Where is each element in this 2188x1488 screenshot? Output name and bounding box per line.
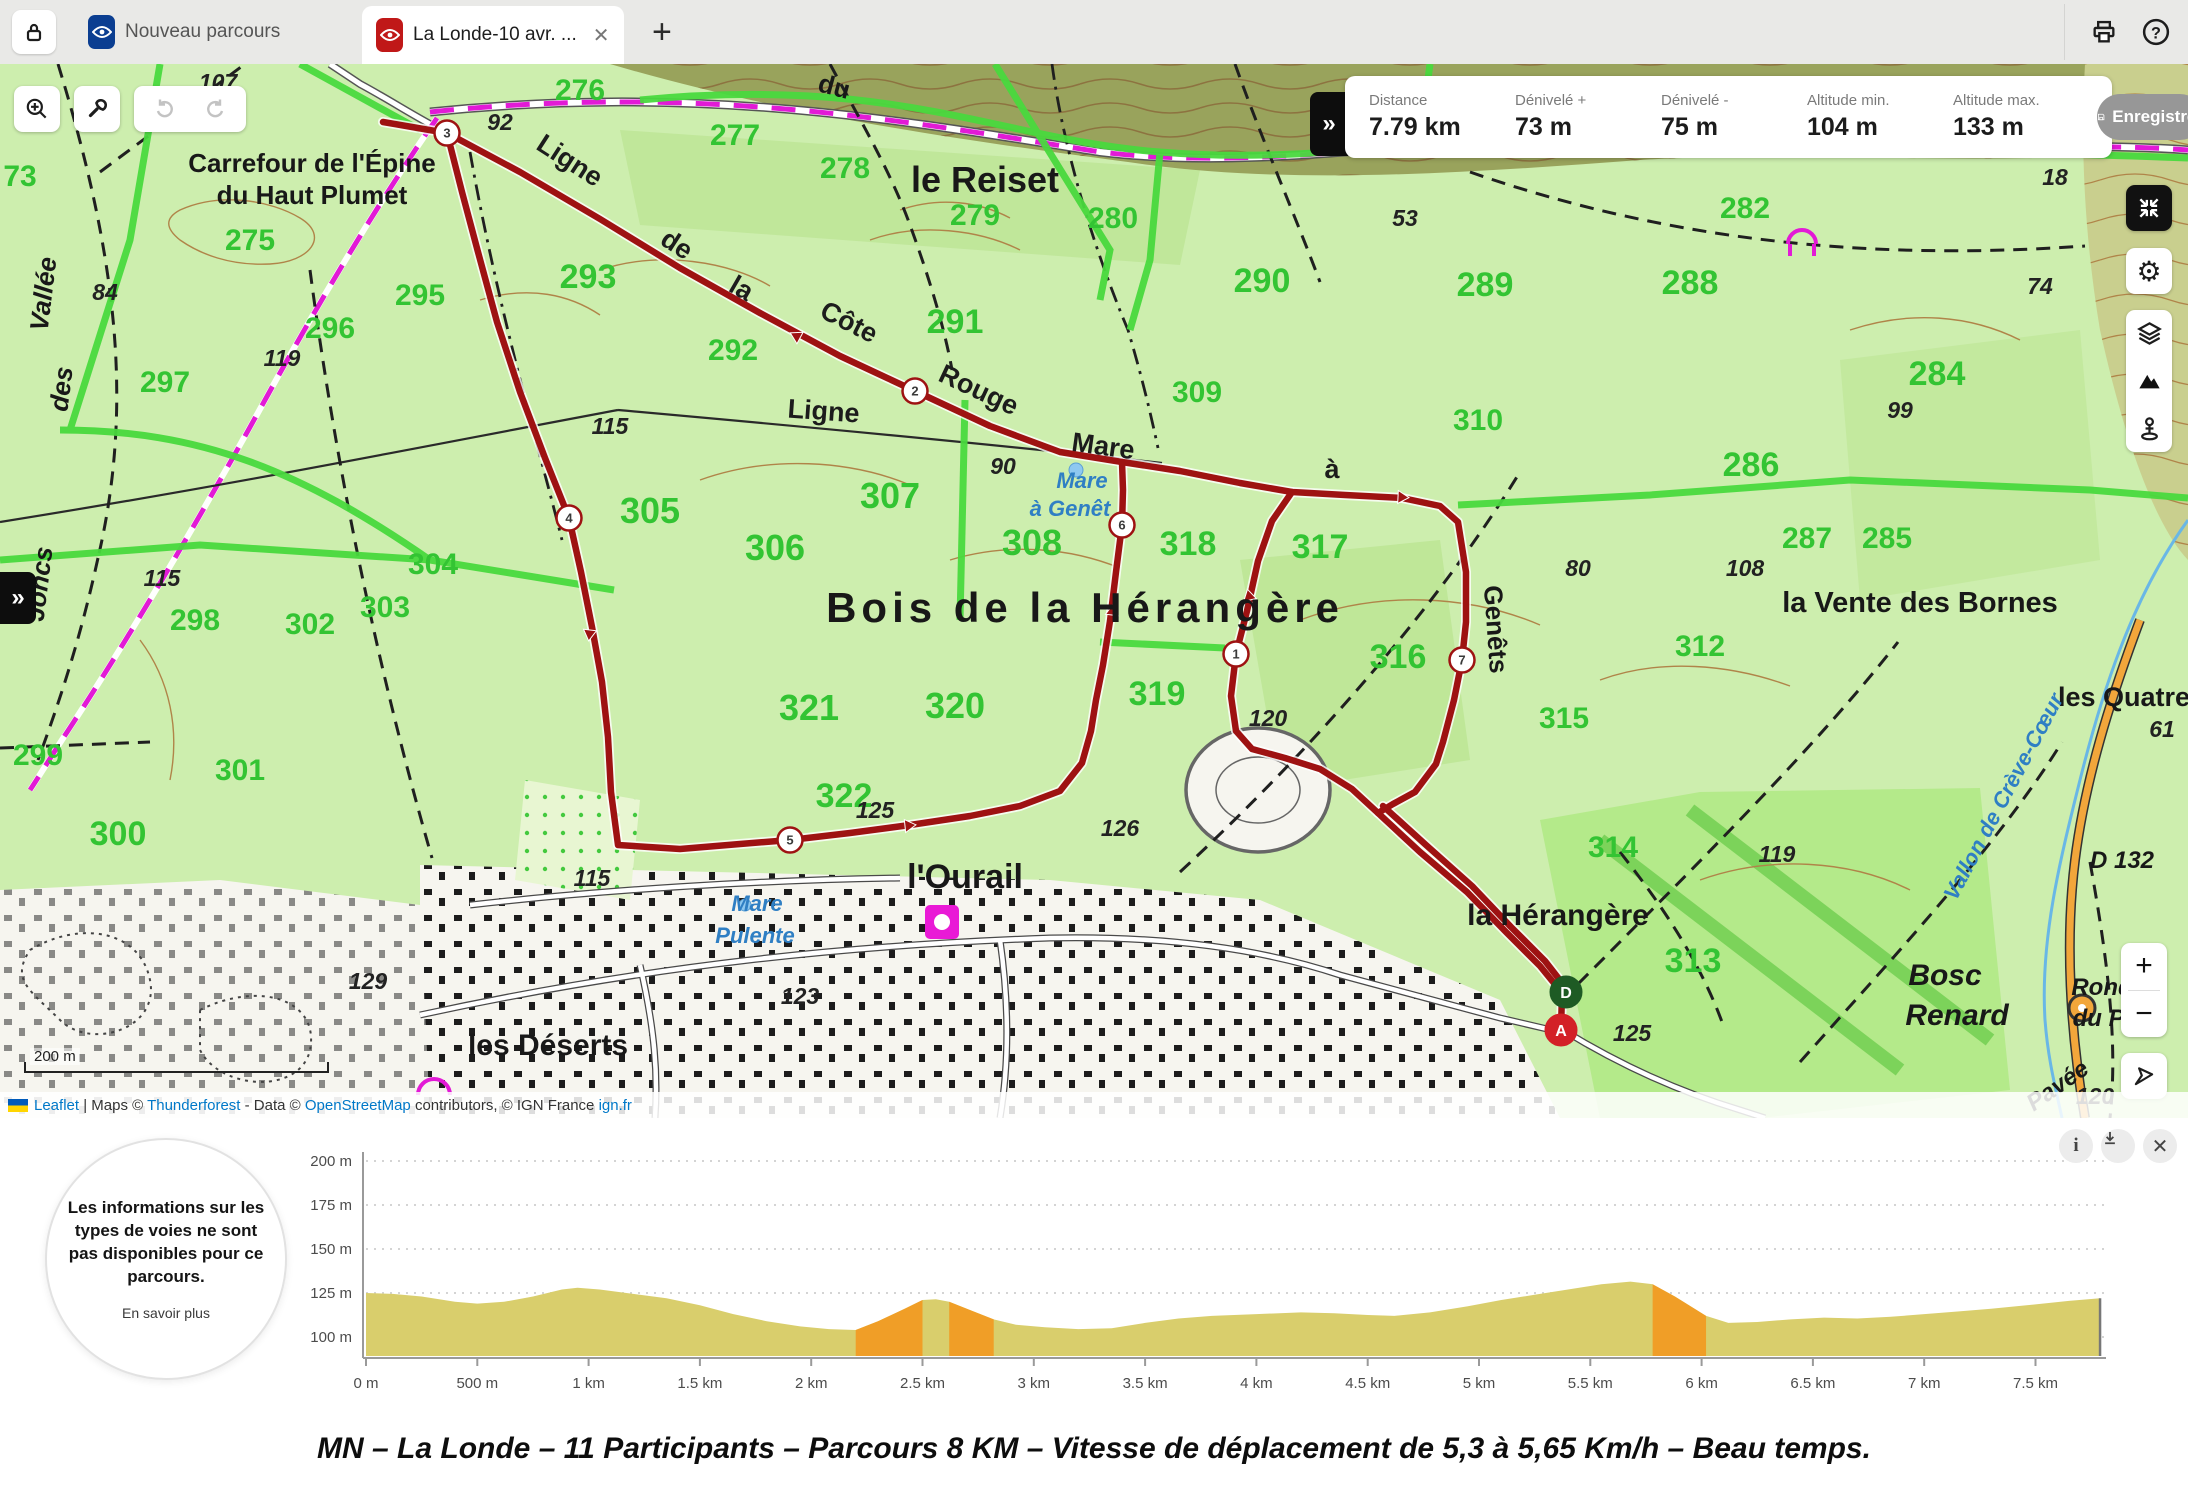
- spot-height-label: 74: [2027, 273, 2053, 299]
- road-type-notice: Les informations sur les types de voies …: [45, 1138, 287, 1380]
- spot-height-label: 90: [990, 453, 1016, 479]
- chart-xtick-label: 500 m: [456, 1375, 498, 1392]
- route-eye-icon-blue: [88, 15, 115, 49]
- chart-xtick-label: 3 km: [1018, 1375, 1051, 1392]
- save-button[interactable]: Enregistrer: [2097, 94, 2188, 140]
- notice-line: types de voies ne sont: [75, 1220, 257, 1243]
- spot-height-label: 53: [1392, 205, 1418, 231]
- stats-collapse-button[interactable]: »: [1310, 92, 1348, 156]
- parcel-number-label: 299: [13, 739, 63, 772]
- parcel-number-label: 308: [1002, 522, 1062, 563]
- parcel-number-label: 307: [860, 475, 920, 516]
- route-waypoint-label: 3: [443, 126, 450, 141]
- parcel-number-label: 282: [1720, 192, 1770, 225]
- chart-ytick-label: 175 m: [310, 1197, 352, 1214]
- attribution-text: Leaflet | Maps © Thunderforest - Data © …: [34, 1097, 632, 1114]
- parcel-number-label: 304: [408, 548, 458, 581]
- download-icon: [2101, 1129, 2119, 1147]
- caption-bar: MN – La Londe – 11 Participants – Parcou…: [0, 1410, 2188, 1488]
- parcel-number-label: 287: [1782, 522, 1832, 555]
- place-label: D 132: [2090, 847, 2155, 874]
- parcel-number-label: 73: [3, 160, 36, 193]
- spot-height-label: 126: [1101, 815, 1140, 841]
- help-icon: ?: [2141, 17, 2171, 47]
- chart-xtick-label: 5 km: [1463, 1375, 1496, 1392]
- parcel-number-label: 293: [560, 258, 617, 296]
- parcel-number-label: 275: [225, 224, 275, 257]
- parcel-number-label: 302: [285, 608, 335, 641]
- print-button[interactable]: [2086, 14, 2122, 50]
- chart-xtick-label: 4 km: [1240, 1375, 1273, 1392]
- stats-panel: Distance7.79 km Dénivelé +73 m Dénivelé …: [1345, 76, 2112, 158]
- place-label: les Quatre: [2058, 682, 2188, 712]
- place-label: Bosc: [1908, 959, 1982, 992]
- chart-xtick-label: 2 km: [795, 1375, 828, 1392]
- zoom-search-button[interactable]: [14, 86, 60, 132]
- parcel-number-label: 310: [1453, 404, 1503, 437]
- chart-ytick-label: 200 m: [310, 1153, 352, 1170]
- stat-altitude-min: Altitude min.104 m: [1807, 92, 1929, 142]
- spot-height-label: 84: [92, 279, 118, 305]
- water-label: à Genêt: [1030, 496, 1112, 521]
- route-marker-label: A: [1555, 1023, 1567, 1040]
- parcel-number-label: 301: [215, 754, 265, 787]
- chart-xtick-label: 2.5 km: [900, 1375, 945, 1392]
- chart-info-button[interactable]: i: [2059, 1129, 2093, 1163]
- chart-xtick-label: 7 km: [1908, 1375, 1941, 1392]
- parcel-number-label: 312: [1675, 630, 1725, 663]
- elevation-panel: 100 m125 m150 m175 m200 m0 m500 m1 km1.5…: [0, 1118, 2188, 1410]
- magnifier-crosshair-icon: [24, 96, 50, 122]
- parcel-number-label: 318: [1160, 525, 1217, 563]
- tab-la-londe-active[interactable]: La Londe-10 avr. ... ✕: [362, 6, 624, 64]
- ukraine-flag-icon: [8, 1099, 28, 1112]
- lock-button[interactable]: [12, 10, 56, 54]
- place-label: Genêts: [1478, 584, 1514, 674]
- stat-distance: Distance7.79 km: [1369, 92, 1491, 142]
- chart-xtick-label: 3.5 km: [1123, 1375, 1168, 1392]
- tab-label: La Londe-10 avr. ...: [413, 24, 577, 46]
- parcel-number-label: 316: [1370, 638, 1427, 676]
- parcel-number-label: 276: [555, 74, 605, 107]
- place-label: les Déserts: [468, 1029, 628, 1062]
- parcel-number-label: 291: [927, 303, 984, 341]
- route-eye-icon-red: [376, 18, 403, 52]
- spot-height-label: 92: [487, 109, 513, 135]
- chart-ytick-label: 100 m: [310, 1329, 352, 1346]
- parcel-number-label: 314: [1588, 831, 1638, 864]
- chart-xtick-label: 0 m: [353, 1375, 378, 1392]
- topo-map-canvas[interactable]: 1234567DA Carrefour de l'Épinedu Haut Pl…: [0, 64, 2188, 1118]
- parcel-number-label: 284: [1909, 355, 1966, 393]
- attribution-link[interactable]: ign.fr: [599, 1097, 632, 1114]
- zoom-out-button[interactable]: −: [2135, 991, 2153, 1038]
- notice-line: pas disponibles pour ce: [69, 1243, 264, 1266]
- path-name-label: à: [1324, 454, 1340, 484]
- attribution-link[interactable]: Thunderforest: [147, 1097, 240, 1114]
- parcel-number-label: 297: [140, 366, 190, 399]
- parcel-number-label: 292: [708, 334, 758, 367]
- attribution-plain: - Data ©: [240, 1097, 304, 1114]
- chart-ytick-label: 125 m: [310, 1285, 352, 1302]
- chart-xtick-label: 6.5 km: [1790, 1375, 1835, 1392]
- settings-button[interactable]: ⚙: [2126, 248, 2172, 294]
- left-panel-expand-button[interactable]: »: [0, 572, 36, 624]
- spot-height-label: 125: [1613, 1020, 1653, 1046]
- place-label: la Hérangère: [1467, 899, 1649, 932]
- attribution-link[interactable]: Leaflet: [34, 1097, 79, 1114]
- elevation-steep-segment: [949, 1302, 994, 1356]
- tab-label: Nouveau parcours: [125, 21, 280, 43]
- layers-icon[interactable]: [2136, 320, 2163, 347]
- chart-xtick-label: 4.5 km: [1345, 1375, 1390, 1392]
- collapse-arrows-icon: [2136, 195, 2162, 221]
- spot-height-label: 119: [1759, 841, 1796, 867]
- attribution-plain: contributors, © IGN France: [411, 1097, 599, 1114]
- path-name-label: Ligne: [787, 394, 861, 429]
- parcel-number-label: 300: [90, 815, 147, 853]
- new-tab-button[interactable]: +: [652, 15, 672, 49]
- route-waypoint-label: 2: [911, 384, 918, 399]
- parcel-number-label: 277: [710, 119, 760, 152]
- route-waypoint-label: 6: [1118, 518, 1125, 533]
- chart-xtick-label: 6 km: [1685, 1375, 1718, 1392]
- parcel-number-label: 319: [1129, 675, 1186, 713]
- route-waypoint-label: 7: [1458, 653, 1465, 668]
- stat-altitude-max: Altitude max.133 m: [1953, 92, 2091, 142]
- redo-icon[interactable]: [203, 97, 227, 121]
- route-marker-label: D: [1560, 985, 1572, 1002]
- place-label: la Vente des Bornes: [1782, 587, 2058, 619]
- chart-xtick-label: 5.5 km: [1568, 1375, 1613, 1392]
- exit-fullscreen-button[interactable]: [2126, 185, 2172, 231]
- spot-height-label: 129: [349, 968, 388, 994]
- parcel-number-label: 289: [1457, 266, 1514, 304]
- stat-elevation-loss: Dénivelé -75 m: [1661, 92, 1783, 142]
- map-area: 1234567DA Carrefour de l'Épinedu Haut Pl…: [0, 64, 2188, 1118]
- parcel-number-label: 303: [360, 591, 410, 624]
- save-icon: [2097, 109, 2105, 125]
- spot-height-label: 115: [144, 565, 182, 591]
- parcel-number-label: 290: [1234, 262, 1291, 300]
- spot-height-label: 99: [1887, 397, 1913, 423]
- water-label: Pulente: [715, 923, 794, 948]
- spot-height-label: 123: [781, 983, 820, 1009]
- elevation-steep-segment: [856, 1300, 923, 1356]
- parcel-number-label: 278: [820, 152, 870, 185]
- chart-close-button[interactable]: ✕: [2143, 1129, 2177, 1163]
- svg-text:?: ?: [2151, 24, 2161, 42]
- chart-ytick-label: 150 m: [310, 1241, 352, 1258]
- spot-height-label: 18: [2042, 164, 2068, 190]
- undo-redo-group: [134, 86, 246, 132]
- close-tab-icon[interactable]: ✕: [593, 23, 610, 48]
- place-label: Renard: [1905, 999, 2009, 1032]
- parcel-number-label: 315: [1539, 702, 1589, 735]
- water-label: Mare: [1056, 468, 1107, 493]
- chart-xtick-label: 1.5 km: [677, 1375, 722, 1392]
- caption-text: MN – La Londe – 11 Participants – Parcou…: [317, 1432, 1871, 1466]
- chart-xtick-label: 7.5 km: [2013, 1375, 2058, 1392]
- chart-download-button[interactable]: [2101, 1129, 2135, 1163]
- map-display-group: [2126, 310, 2172, 452]
- parcel-number-label: 279: [950, 199, 1000, 232]
- lock-icon: [22, 20, 46, 44]
- tools-button[interactable]: [74, 86, 120, 132]
- street-view-icon[interactable]: [2136, 415, 2163, 442]
- tab-nouveau-parcours[interactable]: Nouveau parcours: [88, 0, 280, 64]
- parcel-number-label: 288: [1662, 264, 1719, 302]
- notice-line: Les informations sur les: [68, 1197, 265, 1220]
- parcel-number-label: 321: [779, 687, 839, 728]
- gear-icon: ⚙: [2136, 255, 2161, 288]
- learn-more-link[interactable]: En savoir plus: [122, 1305, 210, 1321]
- spot-height-label: 115: [592, 413, 630, 439]
- stat-elevation-gain: Dénivelé +73 m: [1515, 92, 1637, 142]
- place-label: des: [43, 365, 78, 413]
- chart-xtick-label: 1 km: [572, 1375, 605, 1392]
- zoom-control-group: + −: [2121, 943, 2167, 1037]
- spot-height-label: 125: [856, 797, 896, 823]
- spot-height-label: 115: [574, 865, 612, 891]
- zoom-in-button[interactable]: +: [2135, 943, 2153, 990]
- place-label: Bois de la Hérangère: [826, 584, 1344, 631]
- route-waypoint-label: 4: [565, 511, 573, 526]
- parcel-number-label: 286: [1723, 446, 1780, 484]
- attribution-bar: Leaflet | Maps © Thunderforest - Data © …: [0, 1092, 2188, 1118]
- notice-line: parcours.: [127, 1266, 204, 1289]
- spot-height-label: 119: [264, 345, 301, 371]
- place-label: Carrefour de l'Épine: [188, 148, 435, 178]
- place-label: du Haut Plumet: [217, 180, 408, 210]
- spot-height-label: 61: [2149, 716, 2175, 742]
- terrain-icon[interactable]: [2136, 367, 2163, 394]
- scale-label: 200 m: [30, 1048, 80, 1065]
- place-label: l'Ourail: [907, 858, 1023, 896]
- attribution-link[interactable]: OpenStreetMap: [305, 1097, 411, 1114]
- route-waypoint-label: 1: [1232, 647, 1239, 662]
- parcel-number-label: 309: [1172, 376, 1222, 409]
- parcel-number-label: 317: [1292, 528, 1349, 566]
- wrench-icon: [84, 96, 110, 122]
- close-icon: ✕: [2152, 1134, 2169, 1159]
- parcel-number-label: 296: [305, 312, 355, 345]
- water-label: Mare: [731, 891, 782, 916]
- info-icon: i: [2073, 1135, 2078, 1157]
- route-waypoint-label: 5: [786, 833, 793, 848]
- undo-icon[interactable]: [153, 97, 177, 121]
- parcel-number-label: 285: [1862, 522, 1912, 555]
- parcel-number-label: 298: [170, 604, 220, 637]
- parcel-number-label: 295: [395, 279, 445, 312]
- navigation-arrow-icon: [2131, 1063, 2157, 1089]
- parcel-number-label: 313: [1665, 942, 1722, 980]
- parcel-number-label: 305: [620, 490, 680, 531]
- elevation-steep-segment: [1653, 1284, 1706, 1356]
- attribution-plain: | Maps ©: [79, 1097, 147, 1114]
- spot-height-label: 108: [1726, 555, 1765, 581]
- elevation-chart[interactable]: 100 m125 m150 m175 m200 m0 m500 m1 km1.5…: [0, 1118, 2188, 1410]
- place-label: le Reiset: [911, 159, 1059, 200]
- tab-bar: Nouveau parcours La Londe-10 avr. ... ✕ …: [0, 0, 2188, 64]
- parcel-number-label: 320: [925, 685, 985, 726]
- help-button[interactable]: ?: [2138, 14, 2174, 50]
- parcel-number-label: 280: [1088, 202, 1138, 235]
- spot-height-label: 120: [1249, 705, 1288, 731]
- spot-height-label: 80: [1565, 555, 1591, 581]
- parcel-number-label: 306: [745, 527, 805, 568]
- printer-icon: [2090, 18, 2118, 46]
- topbar-divider: [2064, 4, 2065, 60]
